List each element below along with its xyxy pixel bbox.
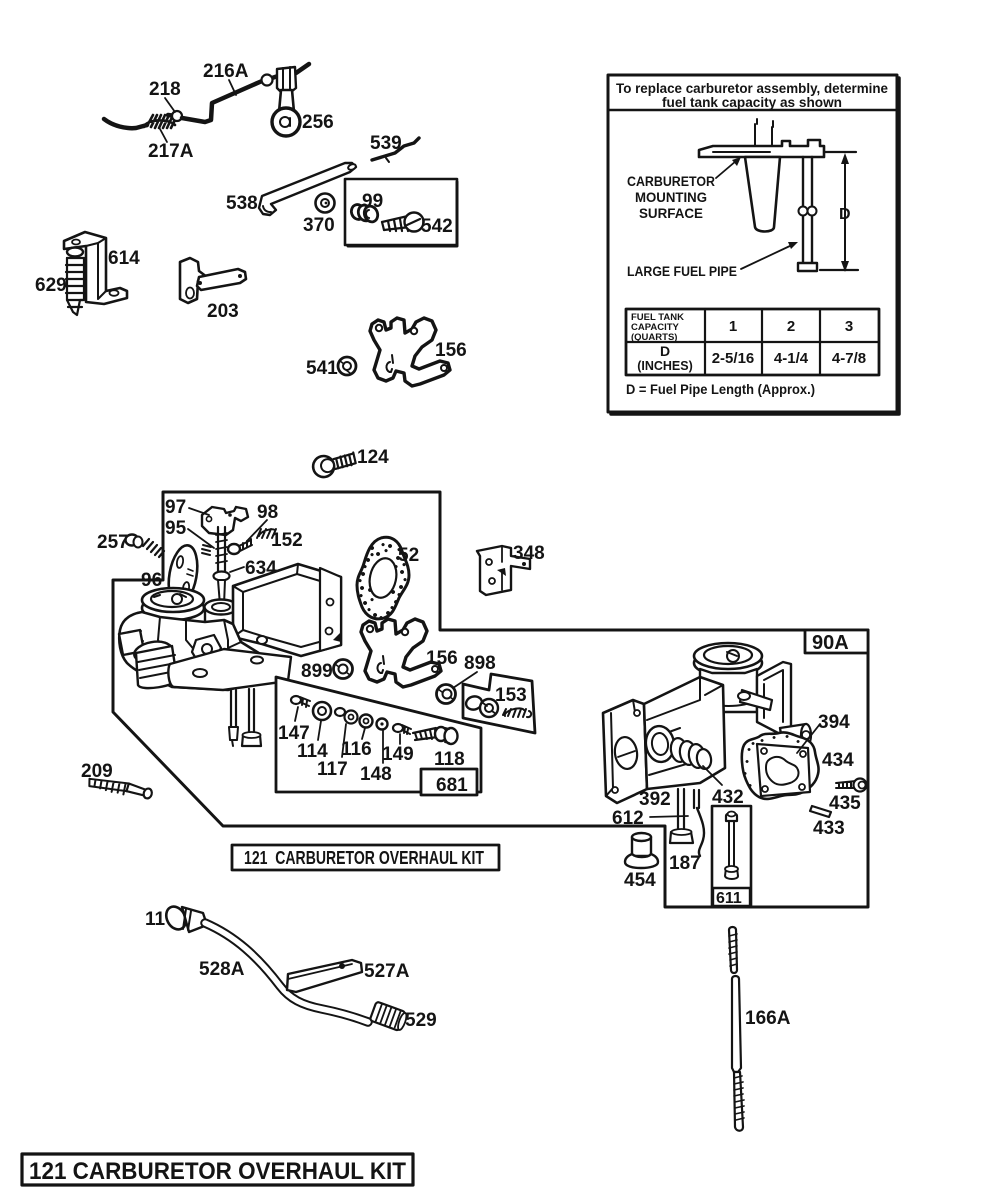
svg-text:629: 629 xyxy=(35,275,67,296)
svg-text:148: 148 xyxy=(360,764,392,785)
svg-text:156: 156 xyxy=(426,648,458,669)
svg-text:454: 454 xyxy=(624,870,656,891)
svg-text:216A: 216A xyxy=(203,61,249,82)
svg-text:95: 95 xyxy=(165,518,187,539)
svg-text:156: 156 xyxy=(435,340,467,361)
svg-text:2-5/16: 2-5/16 xyxy=(712,350,755,367)
svg-text:121 CARBURETOR OVERHAUL KIT: 121 CARBURETOR OVERHAUL KIT xyxy=(29,1158,406,1185)
svg-text:433: 433 xyxy=(813,818,845,839)
svg-text:203: 203 xyxy=(207,301,239,322)
svg-text:121 CARBURETOR OVERHAUL KIT: 121 CARBURETOR OVERHAUL KIT xyxy=(244,848,484,868)
svg-text:370: 370 xyxy=(303,215,335,236)
svg-text:435: 435 xyxy=(829,793,861,814)
svg-text:4-7/8: 4-7/8 xyxy=(832,350,866,367)
svg-text:124: 124 xyxy=(357,447,389,468)
svg-text:SURFACE: SURFACE xyxy=(639,206,703,221)
svg-text:612: 612 xyxy=(612,808,644,829)
svg-text:166A: 166A xyxy=(745,1008,791,1029)
svg-text:539: 539 xyxy=(370,133,402,154)
svg-text:D = Fuel Pipe Length (Approx.): D = Fuel Pipe Length (Approx.) xyxy=(626,382,815,397)
svg-text:149: 149 xyxy=(382,744,414,765)
svg-text:681: 681 xyxy=(436,775,468,796)
svg-text:542: 542 xyxy=(421,216,453,237)
svg-text:218: 218 xyxy=(149,79,181,100)
svg-text:527A: 527A xyxy=(364,961,410,982)
svg-text:257: 257 xyxy=(97,532,129,553)
svg-text:538: 538 xyxy=(226,193,258,214)
svg-text:217A: 217A xyxy=(148,141,194,162)
svg-text:(QUARTS): (QUARTS) xyxy=(631,332,677,343)
svg-text:392: 392 xyxy=(639,789,671,810)
svg-text:52: 52 xyxy=(398,545,419,566)
svg-text:D: D xyxy=(839,206,851,223)
svg-text:611: 611 xyxy=(716,890,742,907)
svg-text:11: 11 xyxy=(145,909,166,930)
svg-text:LARGE FUEL PIPE: LARGE FUEL PIPE xyxy=(627,264,737,279)
svg-text:D: D xyxy=(660,343,670,359)
svg-text:152: 152 xyxy=(271,530,303,551)
svg-text:fuel tank capacity as shown: fuel tank capacity as shown xyxy=(662,94,842,110)
svg-text:97: 97 xyxy=(165,497,186,518)
svg-text:528A: 528A xyxy=(199,959,245,980)
svg-text:434: 434 xyxy=(822,750,854,771)
svg-text:187: 187 xyxy=(669,853,701,874)
svg-text:2: 2 xyxy=(787,318,795,335)
svg-text:899: 899 xyxy=(301,661,333,682)
svg-text:4-1/4: 4-1/4 xyxy=(774,350,809,367)
svg-text:99: 99 xyxy=(362,191,383,212)
svg-text:MOUNTING: MOUNTING xyxy=(635,190,707,205)
svg-text:541: 541 xyxy=(306,358,338,379)
svg-text:256: 256 xyxy=(302,112,334,133)
svg-text:529: 529 xyxy=(405,1010,437,1031)
svg-text:118: 118 xyxy=(434,749,465,770)
svg-text:394: 394 xyxy=(818,712,850,733)
svg-text:3: 3 xyxy=(845,318,853,335)
svg-text:898: 898 xyxy=(464,653,496,674)
svg-text:CARBURETOR: CARBURETOR xyxy=(627,174,715,189)
svg-text:614: 614 xyxy=(108,248,140,269)
svg-text:1: 1 xyxy=(729,318,737,335)
svg-text:90A: 90A xyxy=(812,632,849,654)
svg-text:(INCHES): (INCHES) xyxy=(637,359,693,373)
svg-text:96: 96 xyxy=(141,570,162,591)
svg-text:348: 348 xyxy=(513,543,545,564)
svg-text:153: 153 xyxy=(495,685,527,706)
svg-text:117: 117 xyxy=(317,759,348,780)
svg-text:116: 116 xyxy=(341,739,372,760)
svg-text:209: 209 xyxy=(81,761,113,782)
